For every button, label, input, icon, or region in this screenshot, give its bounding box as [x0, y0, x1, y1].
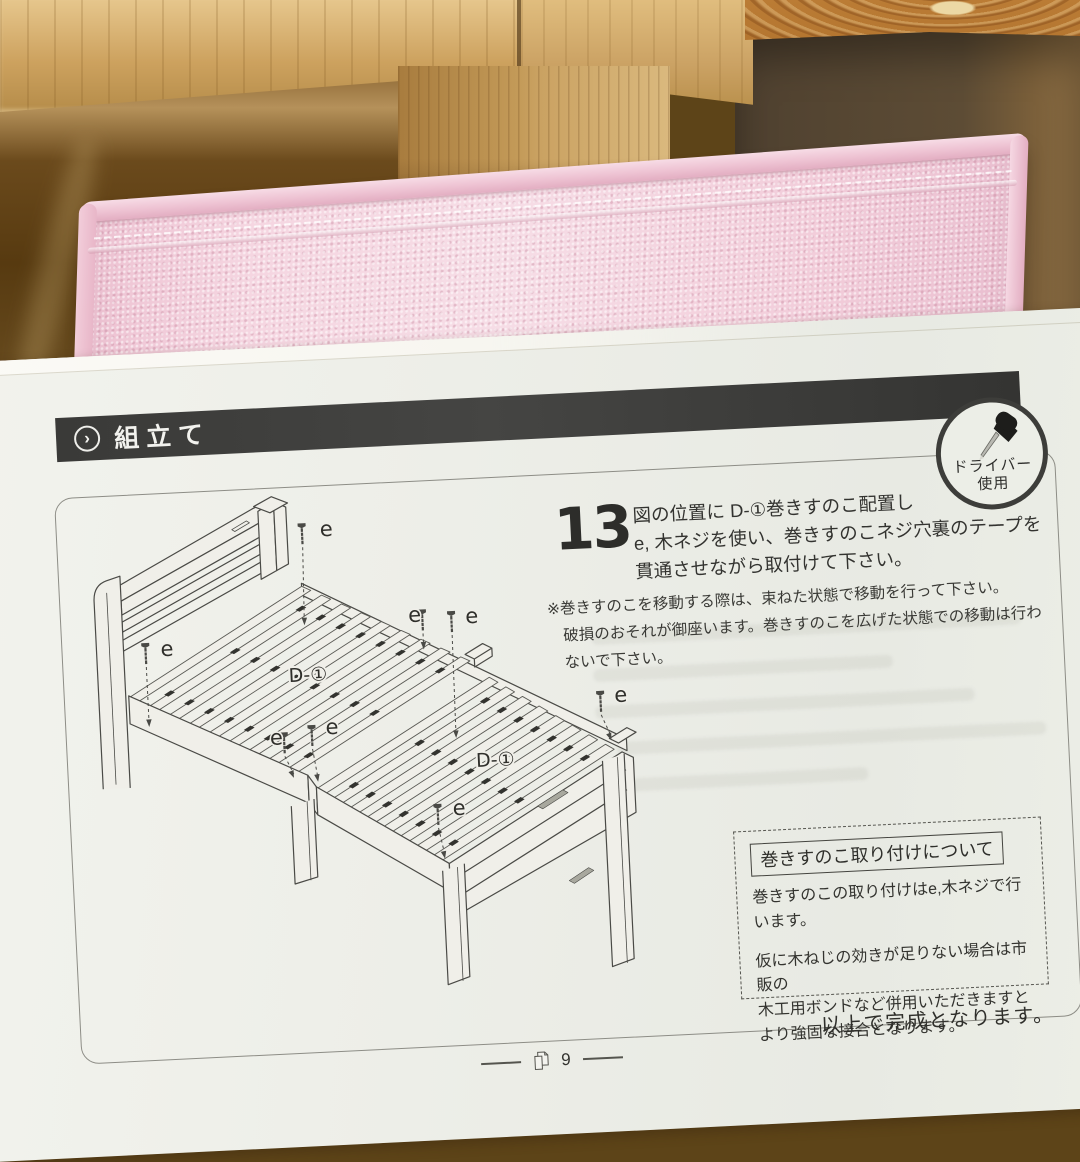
- page-icon: [533, 1051, 550, 1072]
- svg-text:e: e: [452, 796, 466, 821]
- section-header-bar: › 組立て: [55, 371, 1021, 462]
- svg-text:e: e: [408, 603, 422, 628]
- svg-text:e: e: [269, 725, 283, 750]
- part-label: D-①: [476, 748, 516, 772]
- svg-text:e: e: [614, 683, 628, 708]
- section-title: 組立て: [113, 415, 211, 456]
- svg-text:e: e: [319, 517, 333, 542]
- attachment-info-box: 巻きすのこ取り付けについて 巻きすのこの取り付けはe,木ネジで行います。 仮に木…: [733, 817, 1049, 1000]
- instruction-manual-page: › 組立て ドライバー 使用 13 図の位置に D-①巻きすのこ配置し e, 木…: [0, 306, 1080, 1162]
- svg-text:e: e: [160, 637, 174, 662]
- svg-text:e: e: [465, 604, 479, 629]
- footer-rule-right: [583, 1056, 623, 1060]
- page-footer: 9: [417, 1044, 688, 1077]
- part-label: D-①: [288, 663, 328, 687]
- svg-text:e: e: [325, 715, 339, 740]
- bed-leg: [291, 799, 318, 884]
- footer-rule-left: [481, 1061, 521, 1065]
- page-number: 9: [561, 1050, 571, 1070]
- photo-of-assembly-manual: { "colors":{"header_bar":"#3a3a38","pape…: [0, 0, 1080, 1080]
- screwdriver-icon: [965, 409, 1026, 470]
- circle-chevron-icon: ›: [73, 425, 100, 452]
- info-box-title: 巻きすのこ取り付けについて: [750, 831, 1005, 876]
- bed-assembly-diagram: eeeeeeeeD-①D-①: [54, 459, 740, 1031]
